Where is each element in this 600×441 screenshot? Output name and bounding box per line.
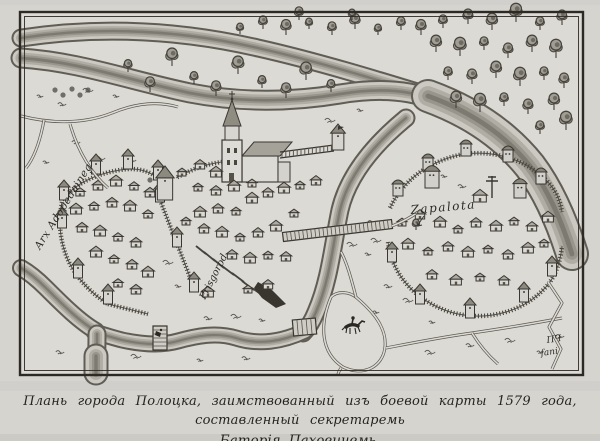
map-engraving: Arx Adopedaineg Prisgorod Zapalota ПЧ fa… <box>0 0 600 441</box>
scanned-map-page: Arx Adopedaineg Prisgorod Zapalota ПЧ fa… <box>0 0 600 441</box>
map-caption: Плань города Полоцка, заимствованный изъ… <box>0 392 600 441</box>
round-tower <box>535 168 547 184</box>
round-tower <box>392 180 404 196</box>
caption-line1: Плань города Полоцка, заимствованный изъ… <box>0 392 600 430</box>
polota-crossing <box>292 318 316 336</box>
round-tower <box>460 140 472 156</box>
round-tower <box>502 146 514 162</box>
caption-line2: Баторія Паховичемь. <box>0 432 600 441</box>
